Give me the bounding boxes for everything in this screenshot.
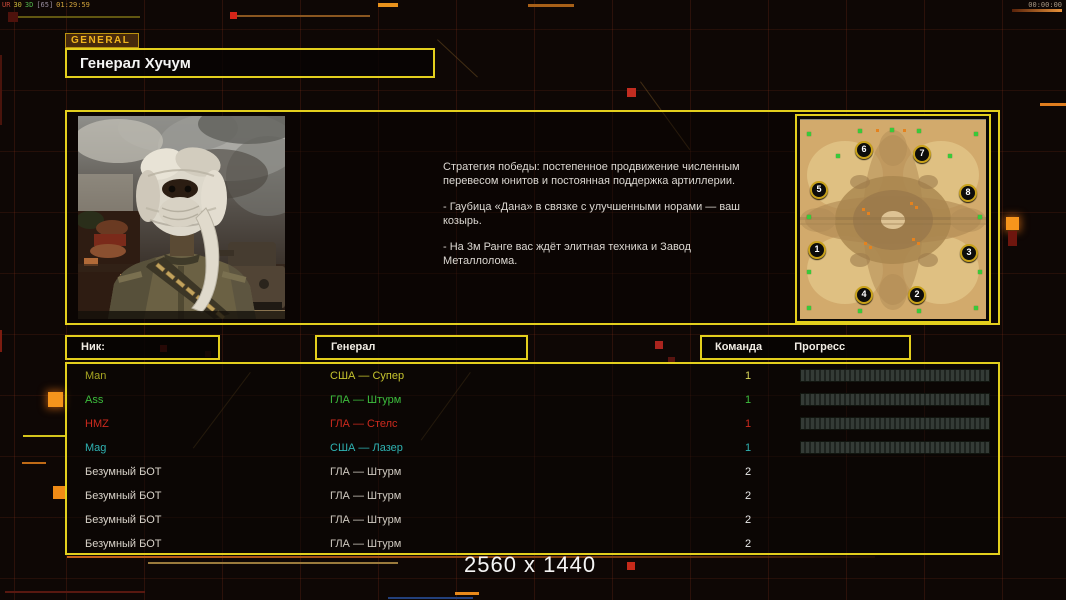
player-general: ГЛА — Стелс <box>330 418 398 430</box>
player-team: 2 <box>731 466 765 478</box>
player-general: США — Супер <box>330 370 404 382</box>
briefing-paragraph: - Гаубица «Дана» в связке с улучшенными … <box>443 200 765 228</box>
column-header-progress: Прогресс <box>794 341 845 353</box>
general-portrait <box>78 116 285 319</box>
supply-dot-icon <box>974 132 978 136</box>
replay-timer-overlay: UR303D[65]01:29:59 <box>2 1 93 9</box>
loading-screen-background: UR303D[65]01:29:59 00:00:00 GENERAL Гене… <box>0 0 1066 600</box>
player-team: 2 <box>731 490 765 502</box>
briefing-panel: Стратегия победы: постепенное продвижени… <box>65 110 1000 325</box>
progress-bar <box>800 369 990 382</box>
decor-line <box>378 3 398 7</box>
general-title: Генерал Хучум <box>67 50 433 72</box>
tech-building-dot-icon <box>869 246 872 249</box>
progress-bar <box>800 393 990 406</box>
tech-building-dot-icon <box>864 242 867 245</box>
player-team: 1 <box>731 418 765 430</box>
decor-line <box>528 4 574 7</box>
minimap: 12345678 <box>800 119 986 319</box>
decor-line <box>1040 103 1066 106</box>
progress-bar <box>800 441 990 454</box>
supply-dot-icon <box>978 215 982 219</box>
player-nick: Безумный БОТ <box>85 514 162 526</box>
tech-building-dot-icon <box>876 129 879 132</box>
player-table: ManСША — Супер1AssГЛА — Штурм1HMZГЛА — С… <box>65 362 1000 555</box>
decor-square <box>48 392 63 407</box>
start-position-marker: 4 <box>855 286 873 304</box>
supply-dot-icon <box>807 306 811 310</box>
decor-square <box>230 12 237 19</box>
player-row: Безумный БОТГЛА — Штурм2 <box>67 484 998 508</box>
supply-dot-icon <box>974 306 978 310</box>
hud-segment: 30 <box>13 1 21 9</box>
decor-square <box>8 12 18 22</box>
briefing-paragraph: - На 3м Ранге вас ждёт элитная техника и… <box>443 240 765 268</box>
player-row: Безумный БОТГЛА — Штурм2 <box>67 460 998 484</box>
match-timer: 00:00:00 <box>1028 1 1062 9</box>
supply-dot-icon <box>858 129 862 133</box>
decor-line <box>148 562 398 564</box>
supply-dot-icon <box>890 128 894 132</box>
start-position-marker: 6 <box>855 141 873 159</box>
briefing-text: Стратегия победы: постепенное продвижени… <box>443 160 765 280</box>
supply-dot-icon <box>948 154 952 158</box>
player-general: США — Лазер <box>330 442 403 454</box>
minimap-terrain <box>800 120 986 319</box>
player-general: ГЛА — Штурм <box>330 490 401 502</box>
hud-segment: 3D <box>25 1 33 9</box>
start-position-marker: 8 <box>959 184 977 202</box>
player-general: ГЛА — Штурм <box>330 394 401 406</box>
start-position-marker: 2 <box>908 286 926 304</box>
decor-square <box>627 88 636 97</box>
player-nick: Ass <box>85 394 103 406</box>
tech-building-dot-icon <box>862 208 865 211</box>
column-header-team-progress: Команда Прогресс <box>700 335 911 360</box>
tech-building-dot-icon <box>910 202 913 205</box>
supply-dot-icon <box>858 309 862 313</box>
decor-square <box>655 341 663 349</box>
start-position-marker: 3 <box>960 244 978 262</box>
column-header-nick: Ник: <box>65 335 220 360</box>
supply-dot-icon <box>807 215 811 219</box>
hud-segment: 01:29:59 <box>56 1 90 9</box>
player-nick: Man <box>85 370 106 382</box>
player-nick: HMZ <box>85 418 109 430</box>
tech-building-dot-icon <box>903 129 906 132</box>
decor-square <box>1006 217 1019 230</box>
player-nick: Безумный БОТ <box>85 466 162 478</box>
supply-dot-icon <box>836 154 840 158</box>
tab-general: GENERAL <box>65 33 139 48</box>
portrait-illustration <box>78 116 285 319</box>
decor-line <box>8 16 140 18</box>
briefing-paragraph: Стратегия победы: постепенное продвижени… <box>443 160 765 188</box>
column-header-general: Генерал <box>315 335 528 360</box>
tech-building-dot-icon <box>912 238 915 241</box>
supply-dot-icon <box>917 129 921 133</box>
progress-bar <box>800 417 990 430</box>
tech-building-dot-icon <box>867 212 870 215</box>
decor-square <box>627 562 635 570</box>
decor-square <box>1008 231 1017 246</box>
player-row: AssГЛА — Штурм1 <box>67 388 998 412</box>
supply-dot-icon <box>917 309 921 313</box>
tech-building-dot-icon <box>915 206 918 209</box>
player-row: ManСША — Супер1 <box>67 364 998 388</box>
hud-segment: UR <box>2 1 10 9</box>
start-position-marker: 5 <box>810 181 828 199</box>
player-row: MagСША — Лазер1 <box>67 436 998 460</box>
player-nick: Безумный БОТ <box>85 538 162 550</box>
start-position-marker: 1 <box>808 241 826 259</box>
minimap-panel: 12345678 <box>795 114 991 323</box>
player-team: 1 <box>731 370 765 382</box>
supply-dot-icon <box>978 270 982 274</box>
column-header-team: Команда <box>715 341 762 353</box>
decor-line <box>232 15 370 17</box>
player-nick: Mag <box>85 442 106 454</box>
general-title-box: Генерал Хучум <box>65 48 435 78</box>
player-row: HMZГЛА — Стелс1 <box>67 412 998 436</box>
player-row: Безумный БОТГЛА — Штурм2 <box>67 508 998 532</box>
player-rows: ManСША — Супер1AssГЛА — Штурм1HMZГЛА — С… <box>67 364 998 556</box>
player-nick: Безумный БОТ <box>85 490 162 502</box>
supply-dot-icon <box>807 132 811 136</box>
decor-line <box>388 597 473 599</box>
decor-line <box>23 435 65 437</box>
resolution-label: 2560 x 1440 <box>464 552 596 578</box>
supply-dot-icon <box>807 270 811 274</box>
decor-line <box>1012 9 1062 12</box>
player-general: ГЛА — Штурм <box>330 538 401 550</box>
start-position-marker: 7 <box>913 145 931 163</box>
player-team: 1 <box>731 394 765 406</box>
decor-line <box>0 330 2 352</box>
decor-line <box>22 462 46 464</box>
player-general: ГЛА — Штурм <box>330 514 401 526</box>
decor-diagonal <box>437 39 478 77</box>
decor-line <box>5 591 145 593</box>
player-team: 1 <box>731 442 765 454</box>
player-general: ГЛА — Штурм <box>330 466 401 478</box>
hud-segment: [65] <box>36 1 53 9</box>
tech-building-dot-icon <box>917 242 920 245</box>
player-team: 2 <box>731 538 765 550</box>
player-team: 2 <box>731 514 765 526</box>
decor-line <box>0 55 2 125</box>
decor-line <box>455 592 479 595</box>
